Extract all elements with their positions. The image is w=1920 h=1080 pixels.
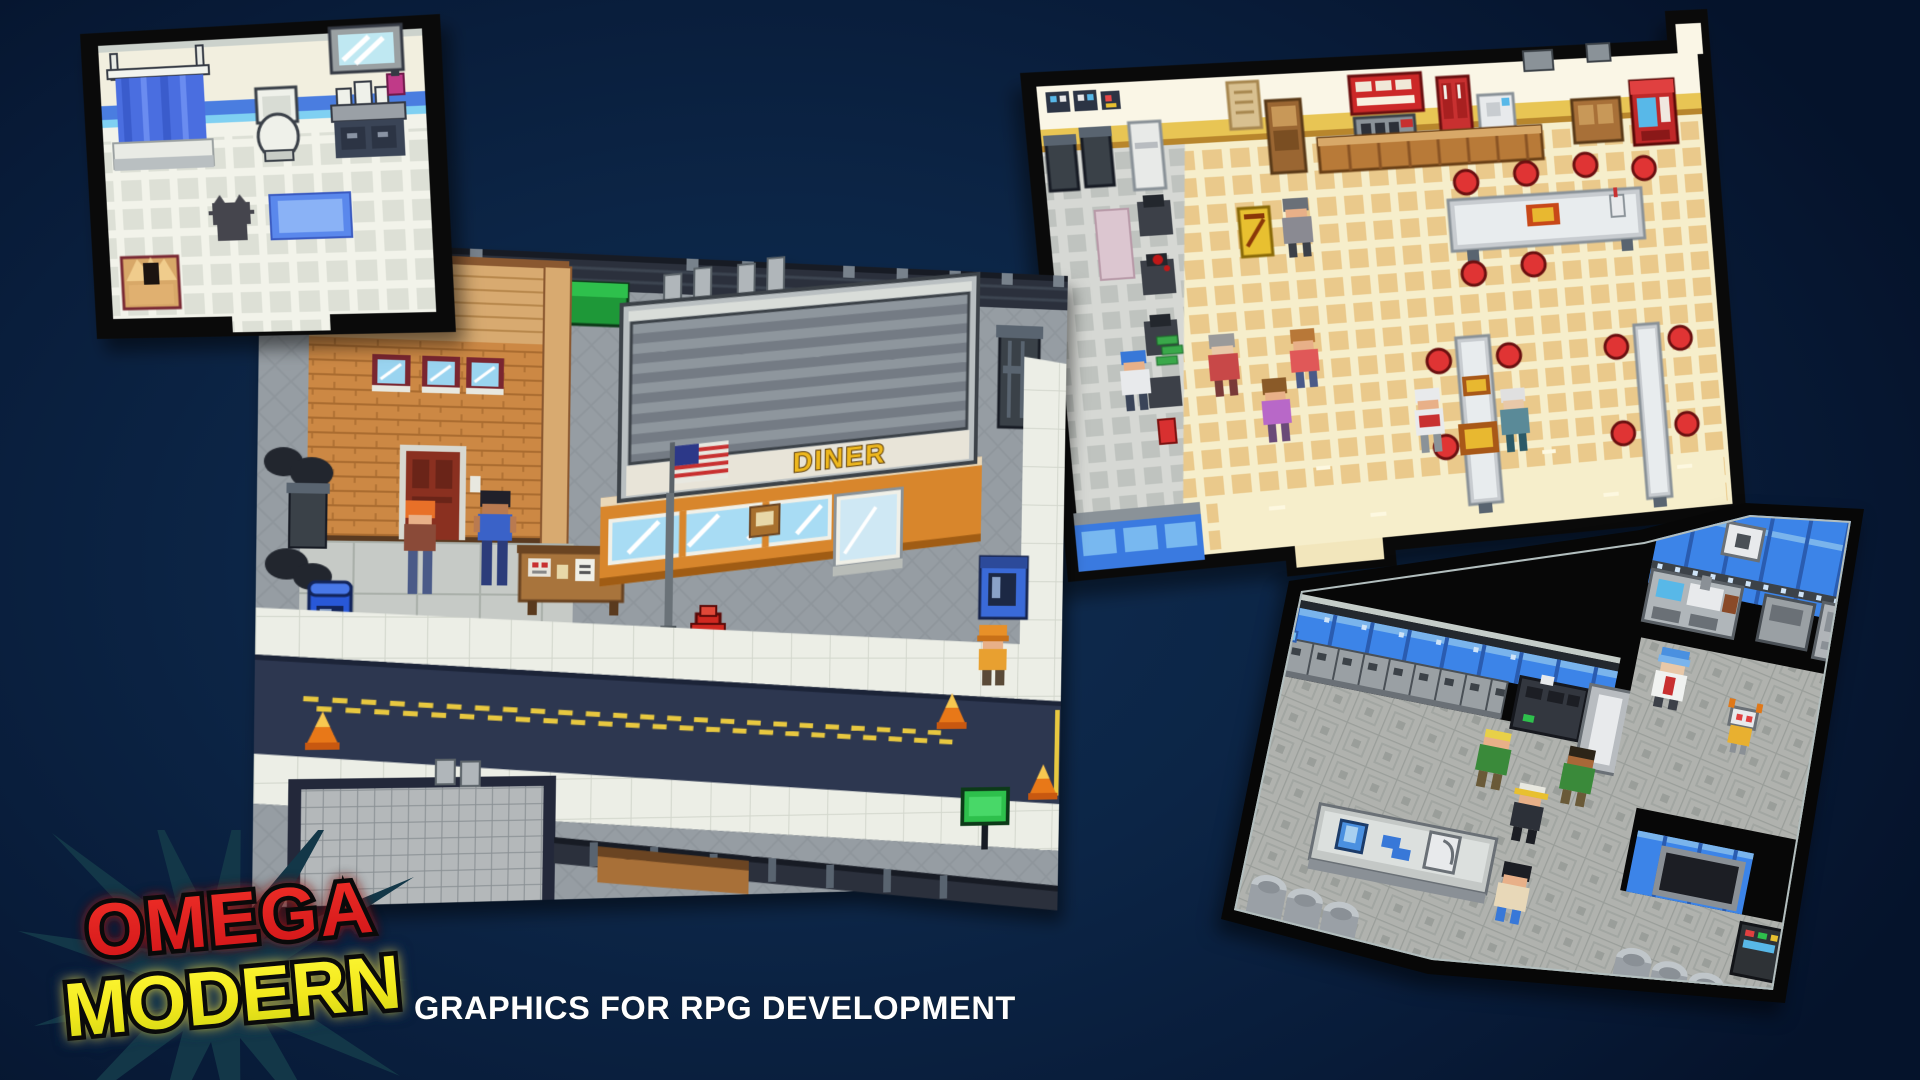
svg-text:GRAPHICS FOR RPG DEVELOPMENT: GRAPHICS FOR RPG DEVELOPMENT [414,990,1016,1026]
